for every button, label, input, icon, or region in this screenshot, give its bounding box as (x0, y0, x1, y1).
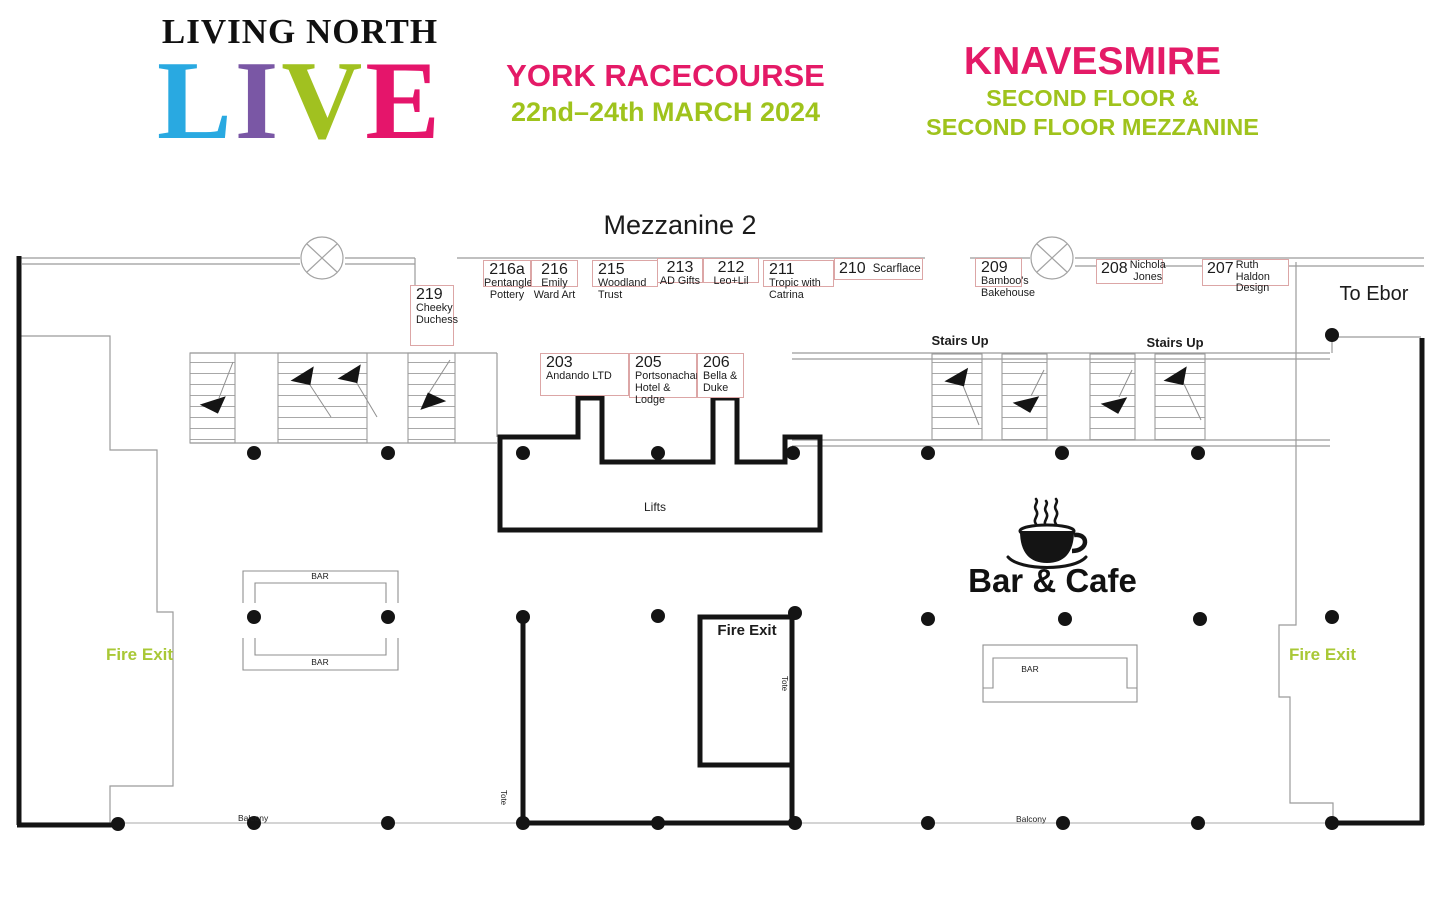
stand-name: Andando LTD (546, 371, 628, 383)
to-ebor-label: To Ebor (1324, 283, 1424, 306)
stand-name: Nichola Jones (1130, 260, 1166, 283)
stand-216: 216 Emily Ward Art (531, 260, 578, 287)
stand-number: 211 (769, 261, 833, 278)
stand-213: 213 AD Gifts (657, 258, 703, 283)
stand-208: 208 Nichola Jones (1096, 259, 1163, 284)
stand-name: Emily Ward Art (532, 278, 577, 301)
fire-exit-room (700, 617, 792, 765)
tote-label-1: Tote (780, 676, 789, 691)
tote-label-2: Tote (499, 790, 508, 805)
stand-212: 212 Leo+Lil (703, 258, 759, 283)
stand-name: Pentangle Pottery (484, 278, 530, 301)
stairs-up-label-left: Stairs Up (910, 333, 1010, 348)
fire-exit-label-right: Fire Exit (1280, 645, 1365, 665)
stand-219: 219 Cheeky Duchess (410, 285, 454, 346)
stand-name: Leo+Lil (704, 276, 758, 288)
stand-name: Scarflace (873, 263, 921, 275)
stand-number: 216 (532, 261, 577, 278)
stand-203: 203 Andando LTD (540, 353, 629, 396)
coffee-cup-icon (1008, 499, 1086, 568)
stand-name: Bella & Duke (703, 371, 743, 394)
lifts-label: Lifts (620, 500, 690, 514)
stand-number: 208 (1101, 260, 1128, 283)
stand-number: 216a (484, 261, 530, 278)
stand-name: Portsonachan Hotel & Lodge (635, 371, 696, 406)
stand-number: 205 (635, 354, 696, 371)
stand-216a: 216a Pentangle Pottery (483, 260, 531, 287)
stand-number: 207 (1207, 260, 1234, 285)
stand-210: 210 Scarflace (834, 258, 923, 280)
stand-name: Bamboo's Bakehouse (981, 276, 1021, 299)
stand-207: 207 Ruth Haldon Design (1202, 259, 1289, 286)
stand-number: 209 (981, 259, 1021, 276)
floorplan-svg (0, 0, 1440, 900)
stand-number: 215 (598, 261, 657, 278)
bar-cafe-label: Bar & Cafe (940, 562, 1165, 600)
stand-name: Ruth Haldon Design (1236, 260, 1288, 285)
stand-number: 213 (658, 259, 702, 276)
stand-number: 203 (546, 354, 628, 371)
bar-label-top-left: BAR (292, 571, 348, 581)
stand-211: 211 Tropic with Catrina (763, 260, 834, 287)
stand-205: 205 Portsonachan Hotel & Lodge (629, 353, 697, 398)
stand-name: Woodland Trust (598, 278, 657, 301)
bar-label-right: BAR (1000, 664, 1060, 674)
balcony-label-left: Balcony (238, 813, 268, 823)
stand-name: AD Gifts (658, 276, 702, 288)
stand-number: 219 (416, 286, 453, 303)
fire-exit-label-left: Fire Exit (92, 645, 187, 665)
stand-name: Tropic with Catrina (769, 278, 833, 301)
stand-206: 206 Bella & Duke (697, 353, 744, 398)
floorplan-page: LIVING NORTH LIVE YORK RACECOURSE 22nd–2… (0, 0, 1440, 900)
balcony-label-right: Balcony (1016, 814, 1046, 824)
plan-title: Mezzanine 2 (555, 210, 805, 241)
stand-215: 215 Woodland Trust (592, 260, 658, 287)
stand-name: Cheeky Duchess (416, 303, 453, 326)
stand-number: 210 (839, 260, 866, 277)
fire-exit-label-center: Fire Exit (707, 622, 787, 639)
stand-209: 209 Bamboo's Bakehouse (975, 258, 1022, 287)
stand-number: 212 (704, 259, 758, 276)
stairs-up-label-right: Stairs Up (1125, 335, 1225, 350)
stand-number: 206 (703, 354, 743, 371)
bar-label-bottom-left: BAR (292, 657, 348, 667)
